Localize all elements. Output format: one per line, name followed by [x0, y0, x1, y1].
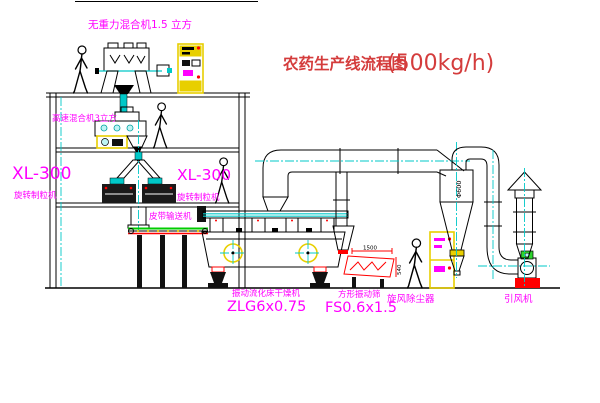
label-high-speed-mixer: 高速混合机3立方	[52, 113, 117, 124]
spring-mount-right	[310, 267, 330, 288]
label-dryer-model: ZLG6x0.75	[227, 299, 306, 315]
vibration-motor-right	[295, 240, 321, 266]
cyclone-diameter-label: Φ600	[455, 180, 463, 198]
gravity-free-mixer	[95, 43, 172, 112]
fluid-bed-dryer	[197, 206, 348, 288]
label-granulator-model-right: XL-300	[177, 166, 231, 184]
label-granulator-name-left: 旋转制粒机	[14, 190, 57, 201]
dim-sieve-height: 540	[397, 264, 403, 275]
dim-sieve-length: 1500	[363, 246, 377, 252]
worker-ground	[408, 239, 423, 288]
label-cyclone: 旋风除尘器	[387, 293, 435, 305]
label-sieve-name: 方形振动筛	[338, 289, 381, 300]
rotary-granulator-left	[102, 184, 136, 203]
vibration-motor-left	[220, 240, 246, 266]
control-cabinet-ground	[430, 232, 454, 288]
square-vibrating-sieve	[344, 248, 396, 288]
induced-draft-fan	[515, 251, 540, 288]
control-cabinet-top	[178, 44, 203, 93]
label-dryer-name: 振动流化床干燥机	[232, 288, 301, 299]
cyclone-dust-collector: Φ600	[440, 142, 473, 278]
worker-top-floor	[74, 46, 88, 93]
label-fan: 引风机	[504, 293, 533, 305]
label-gravity-free-mixer: 无重力混合机1.5 立方	[88, 18, 192, 31]
worker-floor-2	[153, 103, 166, 148]
diagram-capacity: (500kg/h)	[387, 51, 494, 76]
label-granulator-model-left: XL-300	[12, 164, 71, 184]
fan-duct	[452, 147, 550, 280]
label-granulator-name-right: 旋转制粒机	[177, 192, 220, 203]
flow-diagram-svg: Φ600 无重力混合机1.5 立方 农药生产线流程图 (500kg/h)	[0, 0, 600, 403]
spring-mount-left	[208, 267, 228, 288]
label-belt-conveyor: 皮带输送机	[149, 211, 192, 222]
process-flow-drawing: Φ600 无重力混合机1.5 立方 农药生产线流程图 (500kg/h)	[0, 0, 600, 403]
rotary-granulator-right	[142, 184, 176, 203]
